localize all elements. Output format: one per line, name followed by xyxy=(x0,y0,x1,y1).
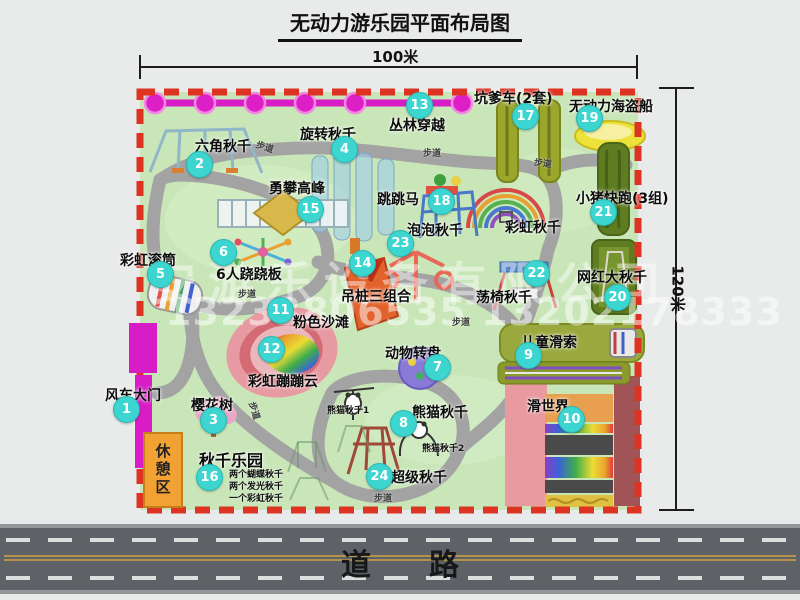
attraction-badge-15: 15 xyxy=(297,196,324,223)
attraction-badge-22: 22 xyxy=(523,260,550,287)
attraction-badge-9: 9 xyxy=(515,342,542,369)
attraction-badge-20: 20 xyxy=(604,284,631,311)
road: 道路 xyxy=(0,524,800,594)
attraction-badge-6: 6 xyxy=(210,239,237,266)
attraction-badge-2: 2 xyxy=(186,151,213,178)
rainbow-swing-label: 彩虹秋千 xyxy=(505,217,561,237)
attraction-badge-13: 13 xyxy=(406,92,433,119)
attraction-label-21: 小猪快跑(3组) xyxy=(576,188,669,208)
attraction-badge-1: 1 xyxy=(113,396,140,423)
attraction-label-11: 粉色沙滩 xyxy=(293,312,349,332)
attraction-label-17: 坑爹车(2套) xyxy=(474,88,553,108)
attraction-badge-19: 19 xyxy=(576,105,603,132)
panda-swing-2-label: 熊猫秋千2 xyxy=(422,441,464,454)
panda-swing-1-label: 熊猫秋千1 xyxy=(327,403,369,416)
attraction-badge-12: 12 xyxy=(258,336,285,363)
attraction-badge-17: 17 xyxy=(512,103,539,130)
attraction-badge-5: 5 xyxy=(147,261,174,288)
attraction-badge-24: 24 xyxy=(366,463,393,490)
attraction-badge-21: 21 xyxy=(590,199,617,226)
attraction-label-23: 泡泡秋千 xyxy=(407,220,463,240)
attraction-badge-7: 7 xyxy=(424,354,451,381)
attraction-badge-23: 23 xyxy=(387,230,414,257)
swing-park-note-3: 一个彩虹秋千 xyxy=(229,491,283,504)
page-title: 无动力游乐园平面布局图 xyxy=(278,7,522,42)
attraction-badge-18: 18 xyxy=(428,188,455,215)
park-layout-map: 无动力游乐园平面布局图 100米 120米 安游乐设备有限公司 13233806… xyxy=(0,0,800,600)
attraction-label-18: 跳跳马 xyxy=(377,189,419,209)
attraction-label-6: 6人跷跷板 xyxy=(216,264,282,284)
attraction-badge-8: 8 xyxy=(390,410,417,437)
attraction-label-14: 吊桩三组合 xyxy=(341,286,411,306)
attraction-label-12: 彩虹蹦蹦云 xyxy=(248,371,318,391)
attraction-badge-4: 4 xyxy=(331,136,358,163)
walkway-label: 步道 xyxy=(452,315,470,328)
attraction-badge-3: 3 xyxy=(200,407,227,434)
rest-area: 休憩区 xyxy=(143,432,183,508)
attraction-label-8: 熊猫秋千 xyxy=(412,402,468,422)
watermark-phone: 13233806535 13202178333 xyxy=(165,290,783,334)
attraction-label-22: 荡椅秋千 xyxy=(476,287,532,307)
walkway-label: 步道 xyxy=(238,287,256,300)
attraction-label-15: 勇攀高峰 xyxy=(269,178,325,198)
attraction-badge-10: 10 xyxy=(558,406,585,433)
attraction-badge-11: 11 xyxy=(267,297,294,324)
road-label: 道路 xyxy=(0,540,800,584)
walkway-label: 步道 xyxy=(423,146,441,159)
height-dimension-label: 120米 xyxy=(668,265,689,311)
attraction-badge-16: 16 xyxy=(196,464,223,491)
attraction-label-24: 超级秋千 xyxy=(391,467,447,487)
walkway-label: 步道 xyxy=(533,155,553,170)
attraction-badge-14: 14 xyxy=(349,250,376,277)
walkway-label: 步道 xyxy=(374,491,392,504)
width-dimension-label: 100米 xyxy=(372,46,418,67)
